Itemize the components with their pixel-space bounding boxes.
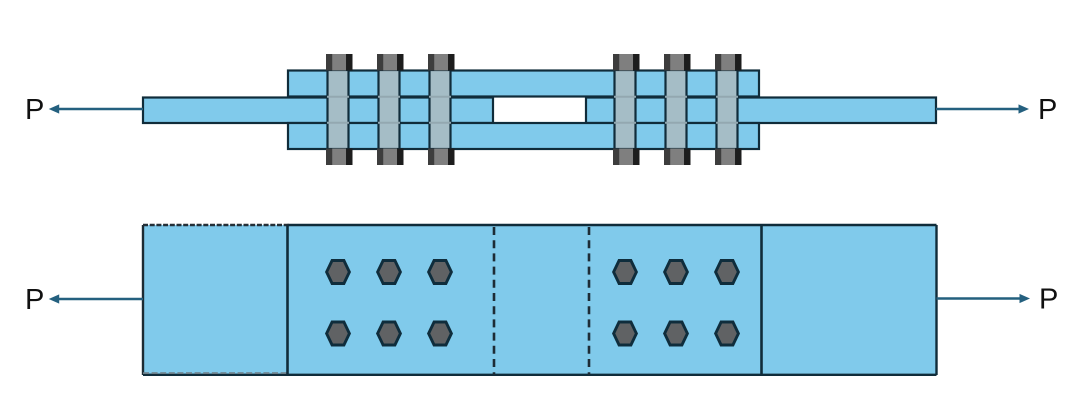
svg-text:P: P <box>1038 94 1057 126</box>
svg-text:P: P <box>25 94 44 126</box>
svg-text:P: P <box>25 284 44 316</box>
svg-text:P: P <box>1039 284 1058 316</box>
